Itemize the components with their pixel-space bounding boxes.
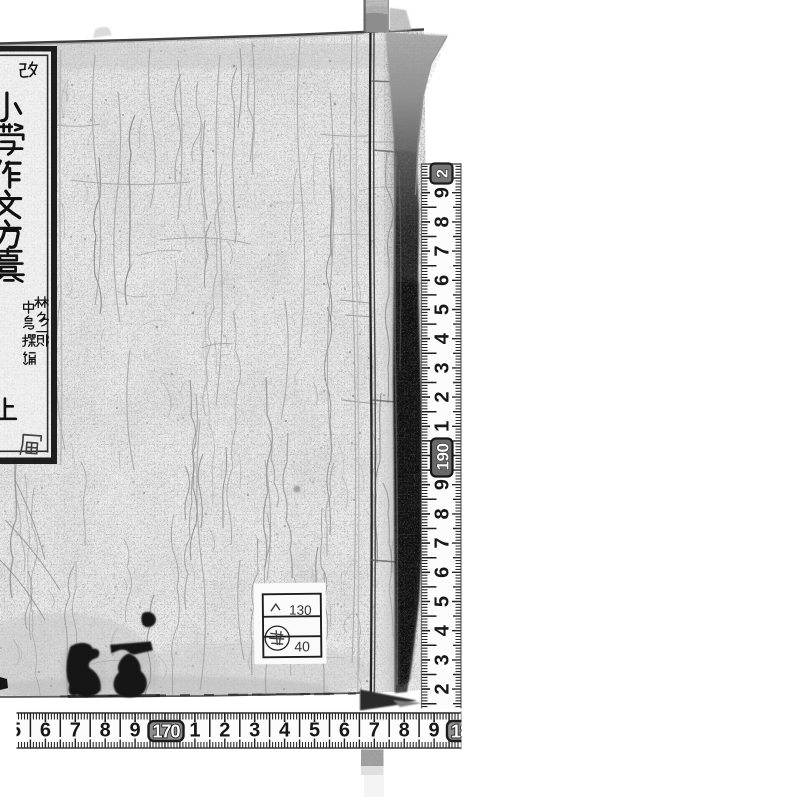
svg-text:4: 4 [432,332,454,344]
svg-text:4: 4 [432,624,454,636]
svg-text:180: 180 [451,722,479,742]
svg-text:130: 130 [289,602,312,618]
svg-text:7: 7 [432,538,454,549]
svg-text:8: 8 [432,508,454,519]
svg-text:9: 9 [432,187,454,198]
svg-text:9: 9 [130,720,141,742]
svg-text:6: 6 [432,275,454,286]
svg-text:2: 2 [432,684,454,695]
svg-text:7: 7 [369,720,380,742]
svg-text:2: 2 [219,720,230,742]
svg-text:2: 2 [432,392,454,403]
svg-text:1: 1 [432,421,454,432]
svg-text:4: 4 [279,720,291,742]
svg-text:8: 8 [399,720,410,742]
svg-text:9: 9 [432,479,454,490]
svg-text:6: 6 [40,720,51,742]
svg-text:7: 7 [70,720,81,742]
svg-text:5: 5 [309,720,320,742]
svg-text:2: 2 [435,169,452,178]
svg-text:1: 1 [189,720,200,742]
svg-text:8: 8 [100,720,111,742]
svg-text:190: 190 [434,444,453,471]
svg-text:5: 5 [432,304,454,315]
svg-text:170: 170 [152,722,180,742]
svg-text:5: 5 [432,596,454,607]
svg-text:7: 7 [432,246,454,257]
svg-text:6: 6 [339,720,350,742]
svg-text:3: 3 [249,720,260,742]
svg-text:6: 6 [432,567,454,578]
svg-text:5: 5 [10,720,21,742]
svg-text:40: 40 [294,638,310,654]
svg-text:3: 3 [432,362,454,373]
svg-text:3: 3 [432,654,454,665]
svg-text:8: 8 [432,216,454,227]
svg-text:9: 9 [429,720,440,742]
